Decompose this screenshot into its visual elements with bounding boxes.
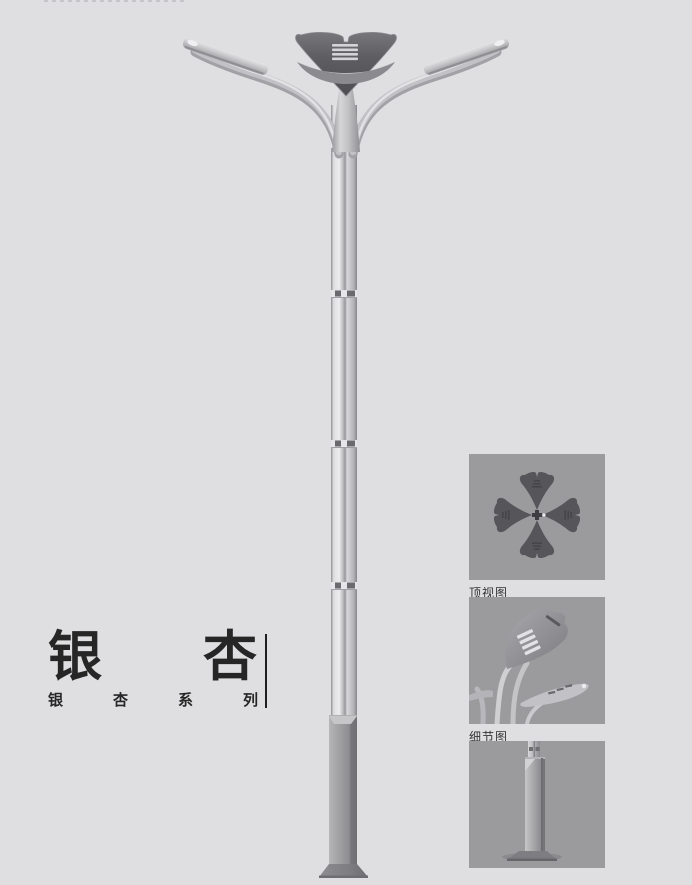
subtitle-char: 银 [48, 693, 63, 708]
title-divider-line [265, 634, 267, 708]
pole-joint [331, 582, 357, 590]
pole-joint [331, 440, 357, 448]
catalog-page: 银 杏 银 杏 系 列 顶视图 [0, 0, 692, 885]
lamp-pole [331, 105, 357, 718]
title-char: 杏 [203, 630, 257, 684]
panel-top-view: 顶视图 [469, 454, 605, 601]
series-subtitle: 银 杏 系 列 [48, 693, 258, 708]
lamp-base-detail-image [469, 741, 605, 868]
lamp-head [296, 32, 397, 96]
panel-base-view [469, 741, 605, 868]
subtitle-char: 系 [178, 693, 193, 708]
subtitle-char: 杏 [113, 693, 128, 708]
series-title: 银 杏 [48, 630, 257, 684]
subtitle-char: 列 [243, 693, 258, 708]
lamp-top-view-image [469, 454, 605, 580]
lamp-head-detail-image [469, 597, 605, 724]
title-char: 银 [48, 630, 102, 684]
pole-joint [331, 290, 357, 298]
lamp-base [319, 715, 368, 878]
panel-detail-view: 细节图 [469, 597, 605, 745]
